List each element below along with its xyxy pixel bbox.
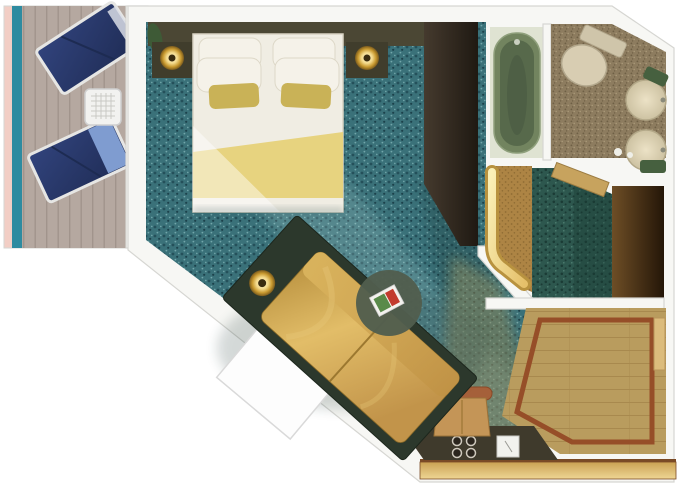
accent-pillow — [280, 83, 331, 110]
soap-dish — [627, 152, 633, 158]
balcony-teal-strip — [12, 6, 22, 248]
round-coffee-table — [356, 270, 422, 336]
bathtub — [494, 33, 540, 153]
soap-dish — [614, 148, 622, 156]
balcony-side-table — [85, 89, 121, 125]
double-bed — [193, 34, 343, 212]
tub-partition-wall — [543, 24, 551, 160]
corridor-bottom-wall — [486, 298, 664, 309]
entry-door — [654, 318, 665, 370]
bed-foot-shadow — [193, 207, 343, 214]
bottom-gold-band — [420, 462, 676, 479]
sink-top — [626, 80, 666, 120]
corridor-wardrobe — [612, 186, 664, 302]
floorplan-svg — [0, 0, 680, 486]
corridor-shadow — [574, 178, 612, 302]
accent-pillow — [208, 83, 259, 110]
floorplan-stage — [0, 0, 680, 486]
counter-green-bottom — [640, 160, 666, 173]
